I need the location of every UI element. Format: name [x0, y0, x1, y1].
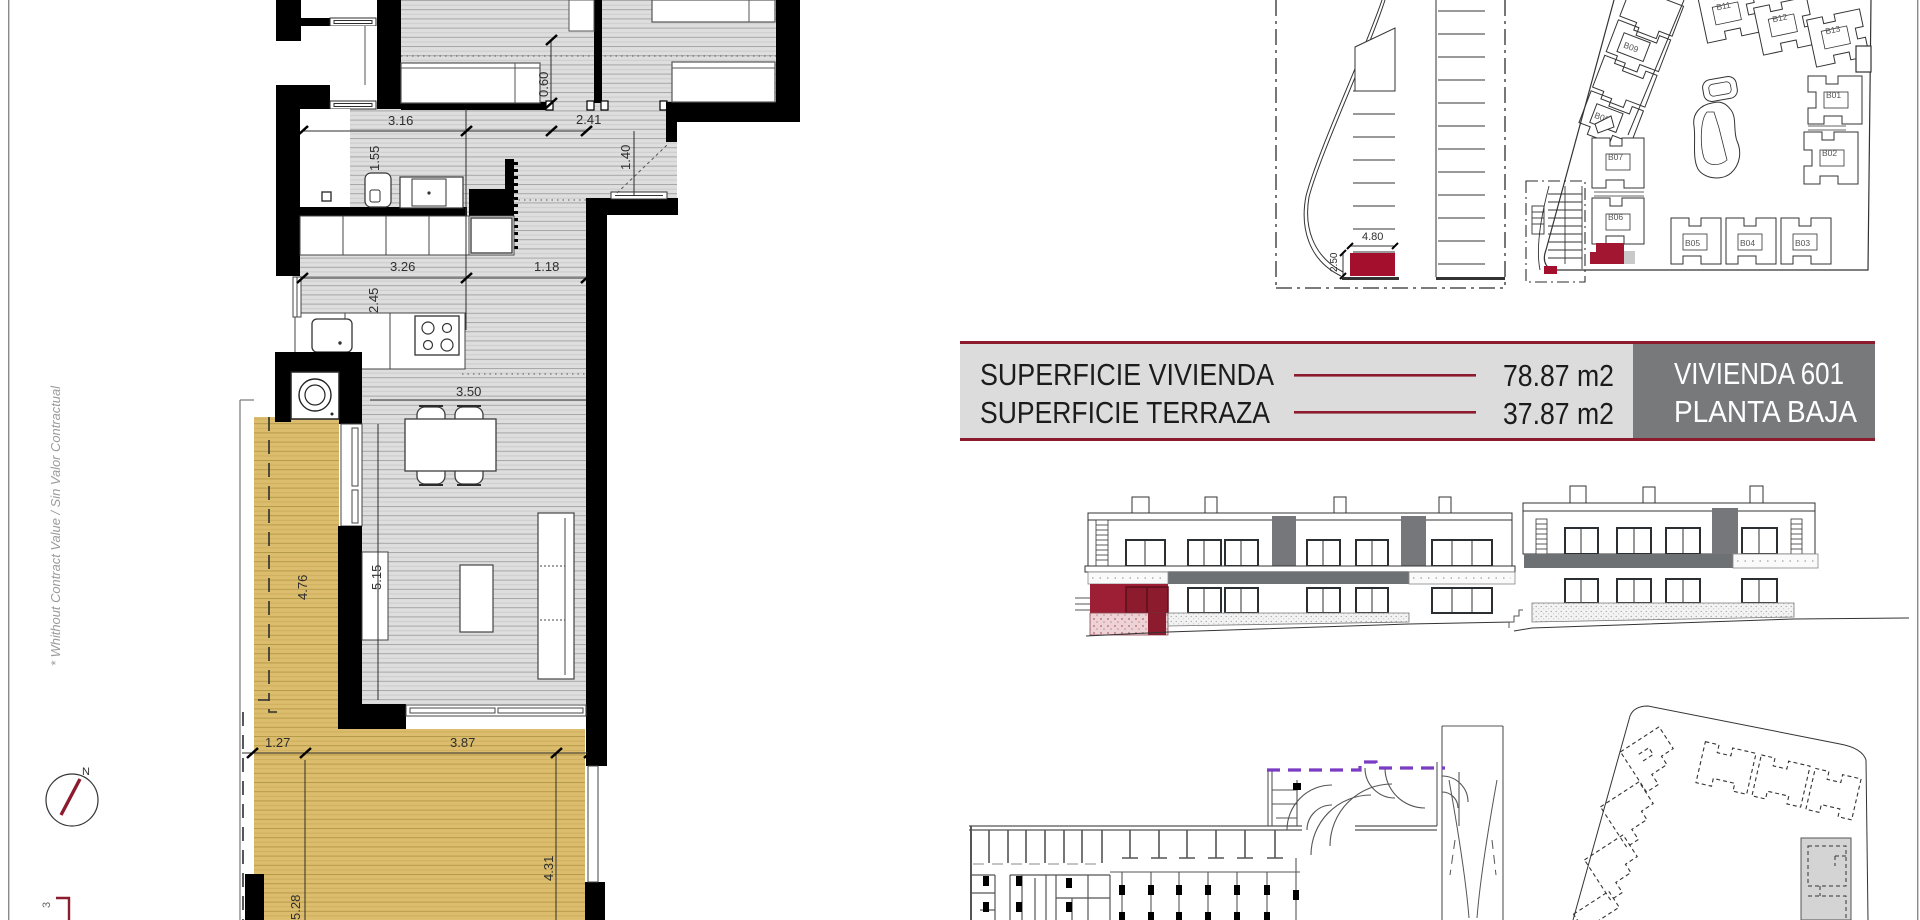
svg-text:B06: B06	[1608, 212, 1623, 222]
svg-text:5.28: 5.28	[288, 895, 303, 920]
svg-text:4.31: 4.31	[541, 856, 556, 881]
svg-text:B04: B04	[1740, 238, 1755, 248]
svg-text:SUPERFICIE TERRAZA: SUPERFICIE TERRAZA	[980, 395, 1270, 430]
svg-text:37.87 m2: 37.87 m2	[1503, 396, 1614, 431]
svg-text:N: N	[82, 766, 90, 778]
svg-text:2.41: 2.41	[576, 112, 601, 127]
svg-text:4.80: 4.80	[1362, 231, 1383, 243]
svg-text:* Whithout Contract Value / Si: * Whithout Contract Value / Sin Valor Co…	[48, 385, 63, 666]
svg-text:B03: B03	[1795, 238, 1810, 248]
svg-text:3.26: 3.26	[390, 259, 415, 274]
svg-text:2.45: 2.45	[366, 288, 381, 313]
svg-text:SUPERFICIE VIVIENDA: SUPERFICIE VIVIENDA	[980, 357, 1274, 392]
svg-text:3: 3	[41, 902, 53, 908]
svg-text:B05: B05	[1685, 238, 1700, 248]
svg-text:5.15: 5.15	[369, 565, 384, 590]
svg-text:B02: B02	[1822, 148, 1837, 158]
svg-text:2.50: 2.50	[1329, 252, 1340, 272]
svg-text:1.40: 1.40	[618, 145, 633, 170]
svg-text:PLANTA BAJA: PLANTA BAJA	[1674, 394, 1857, 429]
svg-text:3.87: 3.87	[450, 735, 475, 750]
svg-text:B07: B07	[1608, 152, 1623, 162]
svg-text:78.87 m2: 78.87 m2	[1503, 358, 1614, 393]
svg-text:3.50: 3.50	[456, 384, 481, 399]
svg-text:1.27: 1.27	[265, 735, 290, 750]
svg-text:VIVIENDA 601: VIVIENDA 601	[1674, 356, 1844, 391]
svg-text:B01: B01	[1826, 90, 1841, 100]
svg-text:B09: B09	[1622, 40, 1640, 55]
svg-text:3.16: 3.16	[388, 113, 413, 128]
svg-text:0.60: 0.60	[536, 72, 551, 97]
svg-text:1.55: 1.55	[367, 146, 382, 171]
svg-text:4.76: 4.76	[295, 575, 310, 600]
svg-text:1.18: 1.18	[534, 259, 559, 274]
